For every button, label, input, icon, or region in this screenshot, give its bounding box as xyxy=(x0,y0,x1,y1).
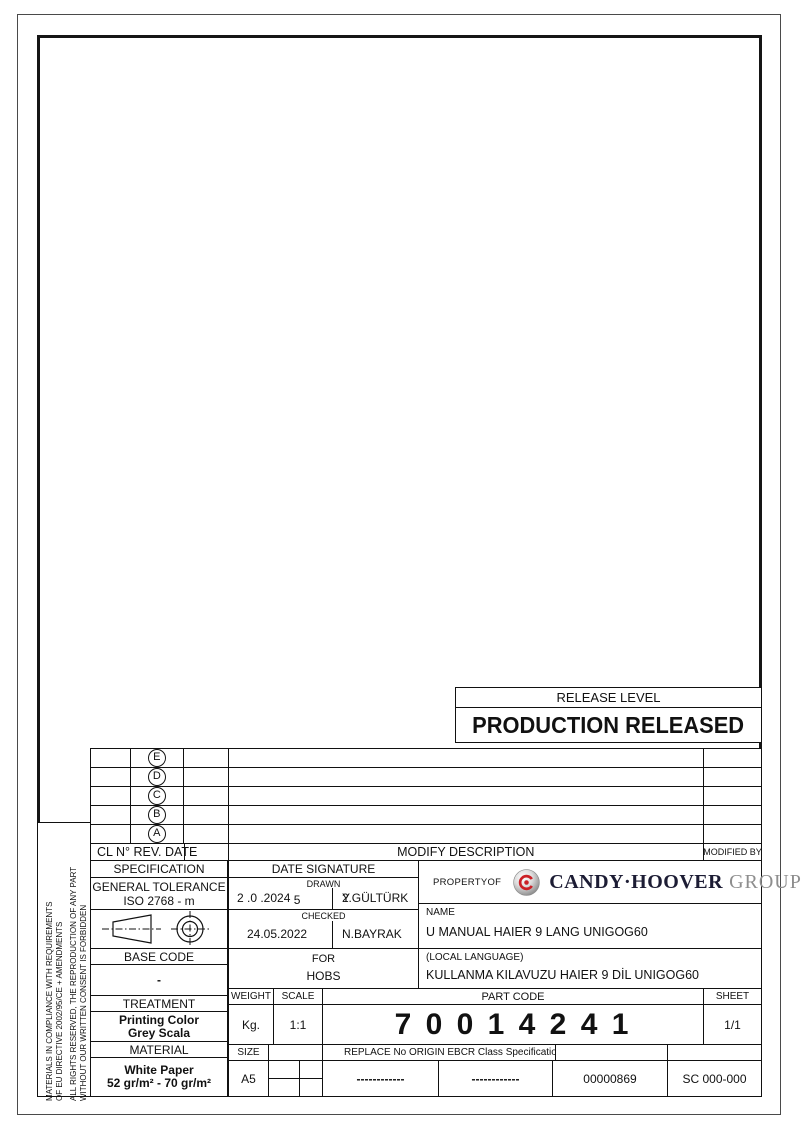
name-label: NAME xyxy=(426,907,455,918)
scale-label: SCALE xyxy=(282,991,315,1002)
for-value: HOBS xyxy=(306,969,340,983)
revision-row-a: A xyxy=(90,824,762,844)
treatment-label: TREATMENT xyxy=(123,997,195,1011)
sheet-value-cell: 1/1 xyxy=(703,1004,762,1045)
side-note-text: MATERIALS IN COMPLIANCE WITH REQUIREMENT… xyxy=(45,823,88,1101)
treatment-header-cell: TREATMENT xyxy=(90,995,228,1012)
scale-header-cell: SCALE xyxy=(273,988,323,1005)
drawn-date-extra: 5 xyxy=(294,893,301,907)
empty-header-cell xyxy=(555,1044,668,1061)
rev-date-cell xyxy=(184,768,229,786)
date-signature-label: DATE SIGNATURE xyxy=(272,862,376,876)
material-value-cell: White Paper 52 gr/m² - 70 gr/m² xyxy=(90,1057,228,1097)
rev-letter-cell: A xyxy=(131,825,184,843)
rev-letter-cell: D xyxy=(131,768,184,786)
part-code-header-cell: PART CODE xyxy=(322,988,704,1005)
for-label: FOR xyxy=(312,953,335,965)
drawn-signature-overlay: 2 xyxy=(342,891,349,905)
property-of-label: PROPERTYOF xyxy=(433,877,501,888)
rev-date-cell xyxy=(184,825,229,843)
revision-letter-badge: A xyxy=(148,825,166,843)
drawn-label: DRAWN xyxy=(229,879,418,889)
rev-cl-cell xyxy=(91,768,131,786)
rev-date-cell xyxy=(184,806,229,824)
general-tolerance-line2: ISO 2768 - m xyxy=(123,894,194,908)
local-language-label: (LOCAL LANGUAGE) xyxy=(426,952,523,963)
rev-description-cell xyxy=(229,749,705,767)
weight-header-cell: WEIGHT xyxy=(228,988,274,1005)
size-value-cell: A5 xyxy=(228,1060,269,1097)
local-language-cell: (LOCAL LANGUAGE) KULLANMA KILAVUZU HAIER… xyxy=(418,948,762,989)
rev-modifiedby-cell xyxy=(704,825,761,843)
side-note-line3: ALL RIGHTS RESERVED, THE REPRODUCTION OF… xyxy=(69,823,79,1101)
sheet-header-cell: SHEET xyxy=(703,988,762,1005)
specification-label: SPECIFICATION xyxy=(113,862,204,876)
release-level-value-cell: PRODUCTION RELEASED xyxy=(455,707,762,743)
empty-grid-cell xyxy=(268,1078,300,1097)
rev-description-cell xyxy=(229,787,705,805)
rev-letter-cell: C xyxy=(131,787,184,805)
rev-modifiedby-cell xyxy=(704,749,761,767)
rev-letter-cell: E xyxy=(131,749,184,767)
rev-cl-cell xyxy=(91,825,131,843)
drawn-date: 2 .0 .2024 5 xyxy=(237,891,300,905)
treatment-value-cell: Printing Color Grey Scala xyxy=(90,1011,228,1042)
first-angle-projection-icon xyxy=(91,910,227,948)
ebcr-class-value-cell: 00000869 xyxy=(552,1060,668,1097)
empty-grid-cell xyxy=(299,1060,323,1079)
base-code-value-cell: - xyxy=(90,964,228,996)
property-of-cell: PROPERTYOF CANDY·HOOVER GROUP xyxy=(418,860,762,904)
origin-value: ------------ xyxy=(472,1072,520,1086)
material-label: MATERIAL xyxy=(129,1043,188,1057)
revision-letter-badge: D xyxy=(148,768,166,786)
rev-modifiedby-cell xyxy=(704,806,761,824)
empty-header-cell xyxy=(268,1044,323,1061)
rev-cl-cell xyxy=(91,749,131,767)
revision-header-center-cell: MODIFY DESCRIPTION xyxy=(229,844,704,860)
release-level-label: RELEASE LEVEL xyxy=(556,690,660,705)
rev-description-cell xyxy=(229,806,705,824)
weight-label: WEIGHT xyxy=(231,991,271,1002)
brand-suffix: GROUP xyxy=(729,871,802,894)
weight-value-cell: Kg. xyxy=(228,1004,274,1045)
checked-signature: N.BAYRAK xyxy=(342,927,402,941)
drawing-sheet: RELEASE LEVEL PRODUCTION RELEASED MATERI… xyxy=(0,0,802,1136)
local-language-value: KULLANMA KILAVUZU HAIER 9 DİL UNIGOG60 xyxy=(426,968,699,982)
revision-header-row: CL N° REV. DATE MODIFY DESCRIPTION MODIF… xyxy=(90,843,762,861)
ebcr-class-value: 00000869 xyxy=(583,1072,636,1086)
drawn-signature-name: Y.GÜLTÜRK xyxy=(342,891,408,905)
drawn-row-cell: DRAWN 2 .0 .2024 5 Y.GÜLTÜRK2 xyxy=(228,877,419,910)
size-header-cell: SIZE xyxy=(228,1044,269,1061)
divider xyxy=(332,888,333,910)
scale-value-cell: 1:1 xyxy=(273,1004,323,1045)
empty-grid-cell xyxy=(299,1078,323,1097)
brand-name: CANDY·HOOVER xyxy=(549,871,723,894)
base-code-label: BASE CODE xyxy=(124,950,194,964)
rev-date-cell xyxy=(184,787,229,805)
general-tolerance-cell: GENERAL TOLERANCE ISO 2768 - m xyxy=(90,877,228,910)
empty-grid-cell xyxy=(268,1060,300,1079)
divider xyxy=(184,844,185,860)
base-code-header-cell: BASE CODE xyxy=(90,948,228,965)
release-level-value: PRODUCTION RELEASED xyxy=(473,712,745,739)
side-note-line4: WITHOUT OUR WRITTEN CONSENT IS FORBIDDEN xyxy=(79,823,89,1101)
replace-header-label: REPLACE No ORIGIN EBCR Class Specificati… xyxy=(344,1047,562,1058)
rev-modifiedby-cell xyxy=(704,768,761,786)
general-tolerance-line1: GENERAL TOLERANCE xyxy=(92,880,225,894)
rev-date-cell xyxy=(184,749,229,767)
rev-letter-cell: B xyxy=(131,806,184,824)
revision-letter-badge: B xyxy=(148,806,166,824)
sc-code-value: SC 000-000 xyxy=(682,1072,746,1086)
rev-description-cell xyxy=(229,768,705,786)
replace-no-value-cell: ------------ xyxy=(322,1060,439,1097)
date-signature-header-cell: DATE SIGNATURE xyxy=(228,860,419,878)
sc-code-value-cell: SC 000-000 xyxy=(667,1060,762,1097)
material-header-cell: MATERIAL xyxy=(90,1041,228,1058)
part-code-label: PART CODE xyxy=(482,991,545,1003)
part-code-value: 7 0 0 1 4 2 4 1 xyxy=(395,1008,632,1042)
modify-description-label: MODIFY DESCRIPTION xyxy=(397,845,534,859)
weight-value: Kg. xyxy=(242,1018,260,1032)
checked-date: 24.05.2022 xyxy=(247,927,307,941)
sheet-value: 1/1 xyxy=(724,1018,741,1032)
specification-header-cell: SPECIFICATION xyxy=(90,860,228,878)
modified-by-label: MODIFIED BY xyxy=(703,847,762,857)
size-label: SIZE xyxy=(237,1047,259,1058)
for-cell: FOR HOBS xyxy=(228,948,419,989)
revision-row-e: E xyxy=(90,748,762,768)
rev-cl-cell xyxy=(91,806,131,824)
material-line2: 52 gr/m² - 70 gr/m² xyxy=(107,1077,211,1090)
origin-value-cell: ------------ xyxy=(438,1060,553,1097)
projection-symbol-cell xyxy=(90,909,228,949)
side-note-line1: MATERIALS IN COMPLIANCE WITH REQUIREMENT… xyxy=(45,823,55,1101)
sheet-label: SHEET xyxy=(716,991,749,1002)
rev-description-cell xyxy=(229,825,705,843)
release-level-header: RELEASE LEVEL xyxy=(455,687,762,708)
side-note-line2: OF EU DIRECTIVE 2002/95/CE + AMENDMENTS xyxy=(55,823,65,1101)
empty-header-cell xyxy=(667,1044,762,1061)
candy-hoover-logo-icon xyxy=(513,869,540,896)
revision-row-c: C xyxy=(90,786,762,806)
name-cell: NAME U MANUAL HAIER 9 LANG UNIGOG60 xyxy=(418,903,762,949)
name-value: U MANUAL HAIER 9 LANG UNIGOG60 xyxy=(426,925,648,939)
divider xyxy=(332,921,333,949)
checked-row-cell: CHECKED 24.05.2022 N.BAYRAK xyxy=(228,909,419,949)
revision-letter-badge: C xyxy=(148,787,166,805)
size-value: A5 xyxy=(241,1072,256,1086)
part-code-value-cell: 7 0 0 1 4 2 4 1 xyxy=(322,1004,704,1045)
scale-value: 1:1 xyxy=(290,1018,307,1032)
revision-header-left-cell: CL N° REV. DATE xyxy=(91,844,229,860)
revision-letter-badge: E xyxy=(148,749,166,767)
rev-modifiedby-cell xyxy=(704,787,761,805)
revision-header-right-cell: MODIFIED BY xyxy=(704,844,761,860)
revision-header-left: CL N° REV. DATE xyxy=(97,845,197,859)
treatment-line1: Printing Color xyxy=(119,1014,199,1027)
drawn-signature: Y.GÜLTÜRK2 xyxy=(342,891,408,905)
replace-header-cell: REPLACE No ORIGIN EBCR Class Specificati… xyxy=(322,1044,556,1061)
revision-row-d: D xyxy=(90,767,762,787)
checked-label: CHECKED xyxy=(229,911,418,921)
rev-cl-cell xyxy=(91,787,131,805)
base-code-value: - xyxy=(157,973,161,987)
revision-row-b: B xyxy=(90,805,762,825)
treatment-line2: Grey Scala xyxy=(128,1027,190,1040)
replace-no-value: ------------ xyxy=(357,1072,405,1086)
